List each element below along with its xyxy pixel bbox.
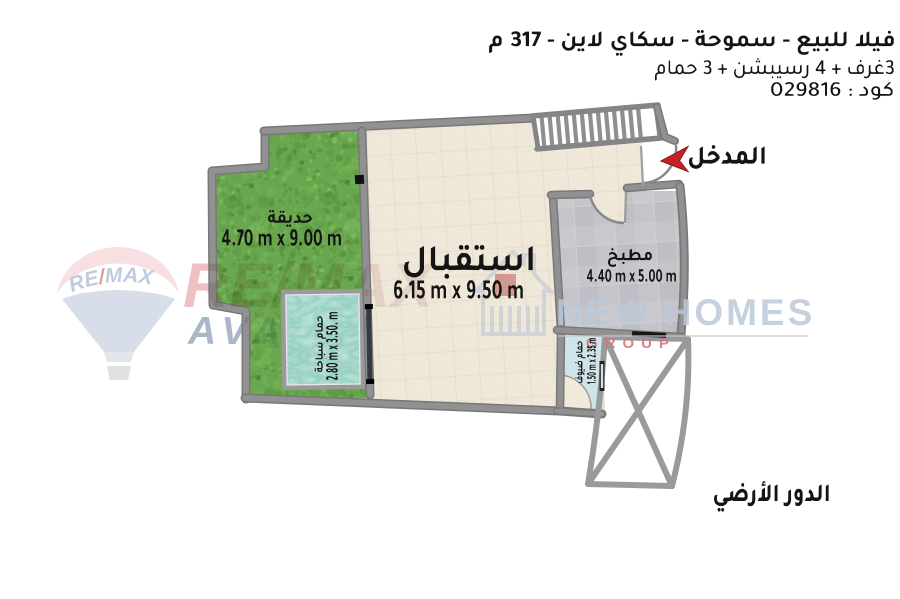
- svg-text:GROUP: GROUP: [586, 335, 676, 352]
- svg-text:NEW HOMES: NEW HOMES: [556, 292, 815, 333]
